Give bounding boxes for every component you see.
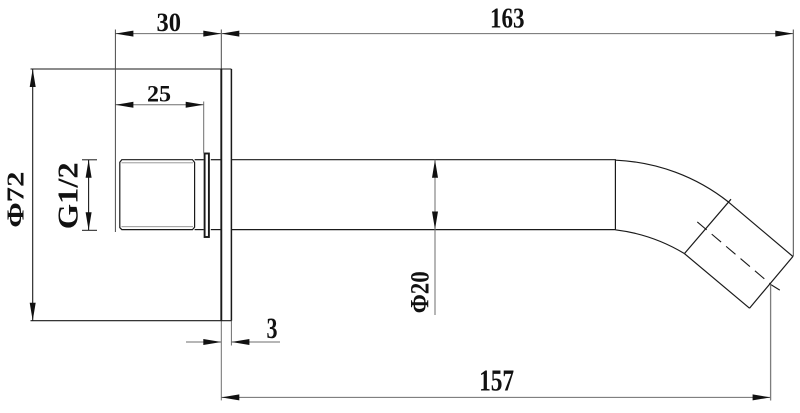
- svg-text:30: 30: [156, 7, 181, 37]
- svg-text:25: 25: [147, 82, 171, 107]
- svg-text:G1/2: G1/2: [53, 162, 85, 229]
- svg-text:Φ20: Φ20: [406, 271, 435, 313]
- svg-text:163: 163: [490, 4, 525, 35]
- svg-text:3: 3: [267, 313, 278, 345]
- svg-text:157: 157: [479, 363, 514, 398]
- svg-text:Φ72: Φ72: [4, 172, 30, 228]
